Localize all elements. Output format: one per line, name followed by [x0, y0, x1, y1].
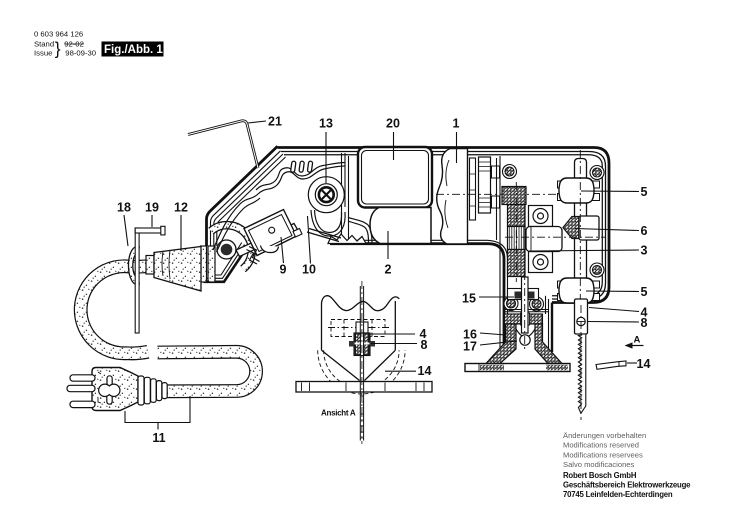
svg-text:92-02: 92-02 [64, 39, 84, 48]
svg-text:10: 10 [302, 263, 316, 277]
svg-text:Ansicht A: Ansicht A [321, 409, 356, 418]
svg-text:Stand: Stand [34, 39, 54, 48]
svg-text:15: 15 [462, 292, 476, 306]
svg-text:5: 5 [641, 185, 648, 199]
svg-text:17: 17 [463, 340, 477, 354]
svg-text:1: 1 [453, 117, 460, 131]
svg-text:21: 21 [268, 115, 282, 129]
svg-text:6: 6 [641, 224, 648, 238]
svg-text:Geschäftsbereich Elektrowerkze: Geschäftsbereich Elektrowerkzeuge [563, 480, 691, 489]
svg-text:5: 5 [641, 285, 648, 299]
svg-text:20: 20 [386, 117, 400, 131]
svg-text:}: } [55, 39, 61, 59]
svg-text:Modifications reserved: Modifications reserved [563, 441, 639, 450]
svg-text:19: 19 [145, 201, 159, 215]
svg-text:0 603 964 126: 0 603 964 126 [34, 29, 83, 38]
svg-text:Issue: Issue [34, 49, 52, 58]
svg-text:18: 18 [117, 201, 131, 215]
svg-text:13: 13 [319, 117, 333, 131]
svg-text:11: 11 [152, 431, 165, 445]
svg-text:14: 14 [637, 357, 651, 371]
svg-text:98-09-30: 98-09-30 [65, 49, 96, 58]
svg-text:Robert Bosch GmbH: Robert Bosch GmbH [563, 471, 637, 480]
svg-text:3: 3 [641, 244, 648, 258]
svg-text:Salvo modificaciones: Salvo modificaciones [563, 460, 635, 469]
svg-text:8: 8 [421, 338, 428, 352]
svg-text:2: 2 [385, 263, 392, 277]
svg-text:70745 Leinfelden-Echterdingen: 70745 Leinfelden-Echterdingen [563, 490, 673, 499]
svg-text:Fig./Abb. 1: Fig./Abb. 1 [104, 44, 163, 56]
svg-text:12: 12 [174, 201, 188, 215]
svg-text:9: 9 [280, 263, 287, 277]
svg-text:A: A [634, 335, 641, 346]
svg-text:Änderungen vorbehalten: Änderungen vorbehalten [563, 431, 646, 440]
svg-text:14: 14 [418, 364, 432, 378]
svg-text:8: 8 [641, 316, 648, 330]
svg-text:Modifications reservees: Modifications reservees [563, 450, 643, 459]
